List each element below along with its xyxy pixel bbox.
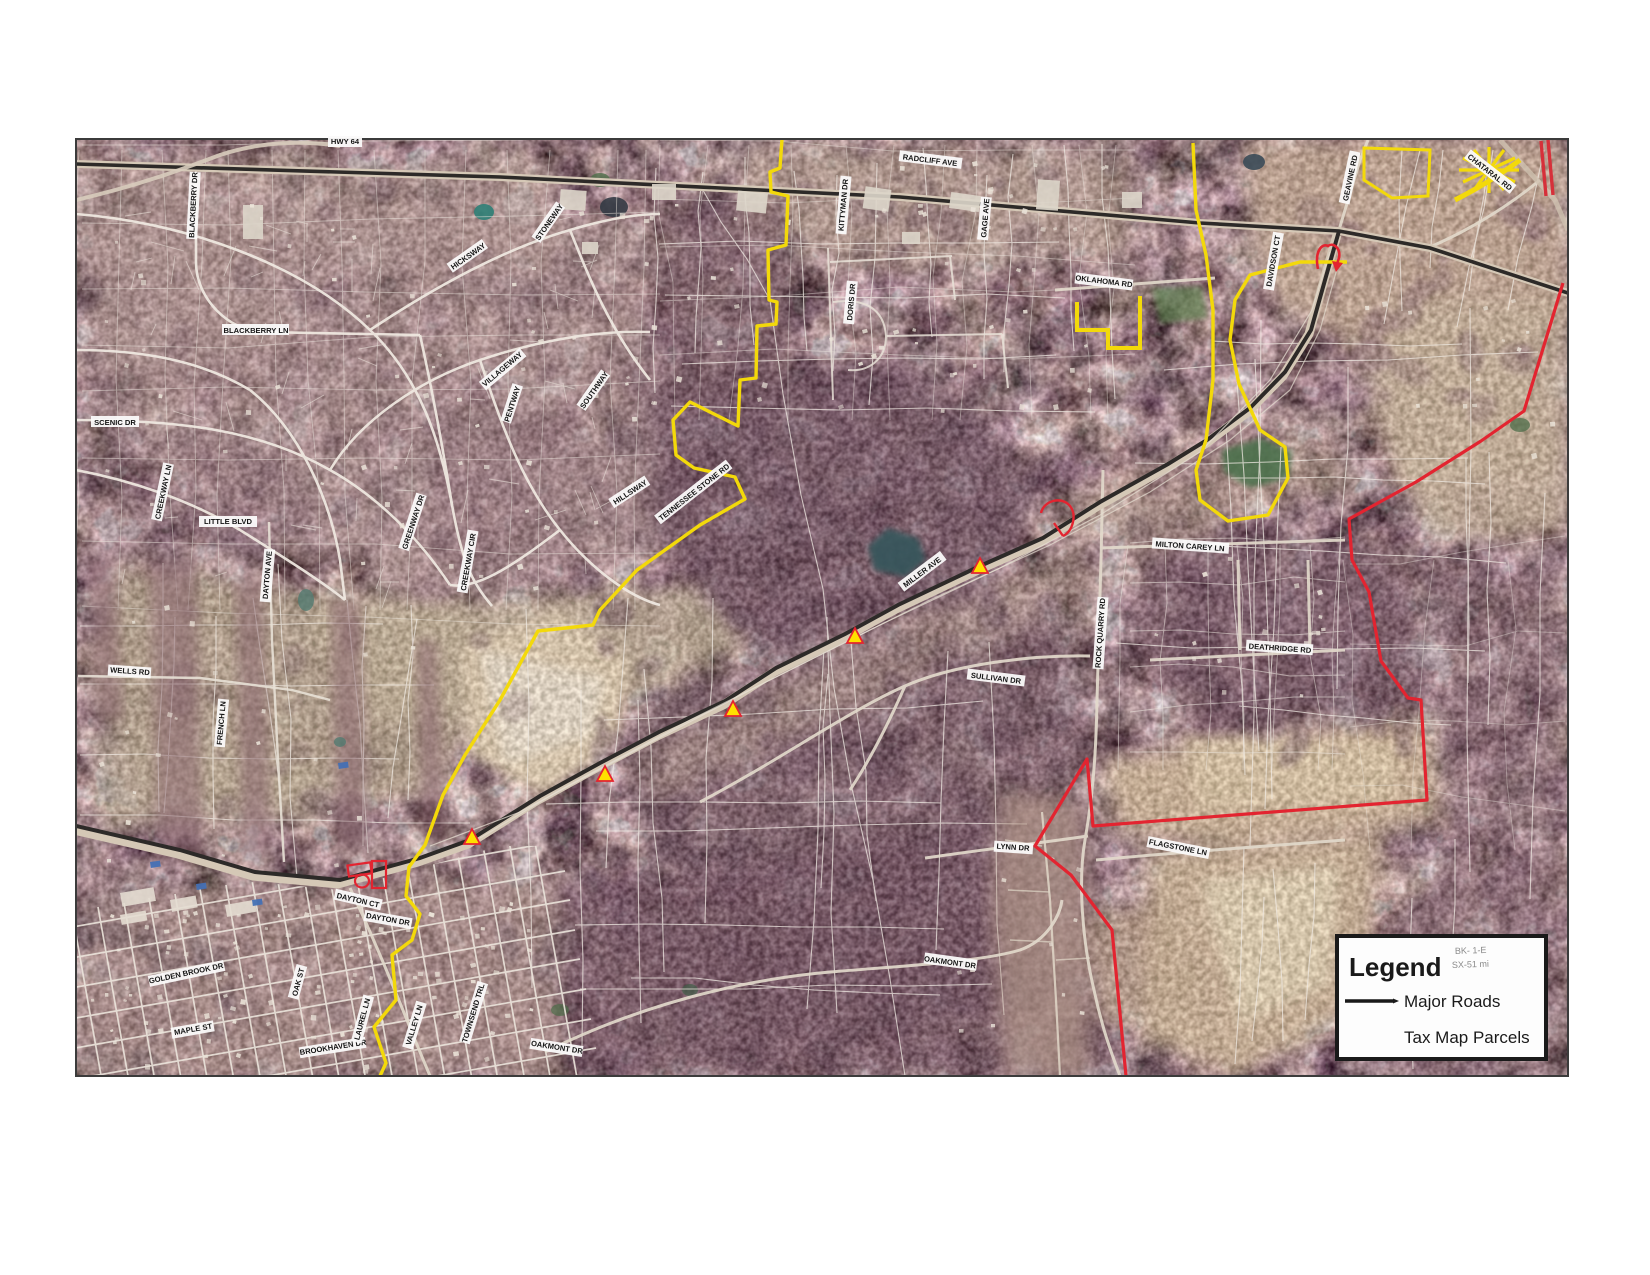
svg-text:HWY 64: HWY 64 <box>331 137 360 146</box>
svg-text:BLACKBERRY LN: BLACKBERRY LN <box>224 326 289 335</box>
svg-text:SX-51 mi: SX-51 mi <box>1452 959 1489 970</box>
svg-text:BK- 1-E: BK- 1-E <box>1455 945 1487 956</box>
svg-text:Tax Map Parcels: Tax Map Parcels <box>1404 1028 1530 1047</box>
svg-text:SCENIC DR: SCENIC DR <box>94 418 136 427</box>
svg-text:LITTLE BLVD: LITTLE BLVD <box>204 517 252 526</box>
svg-text:Major Roads: Major Roads <box>1404 992 1500 1011</box>
svg-text:Legend: Legend <box>1349 952 1441 982</box>
